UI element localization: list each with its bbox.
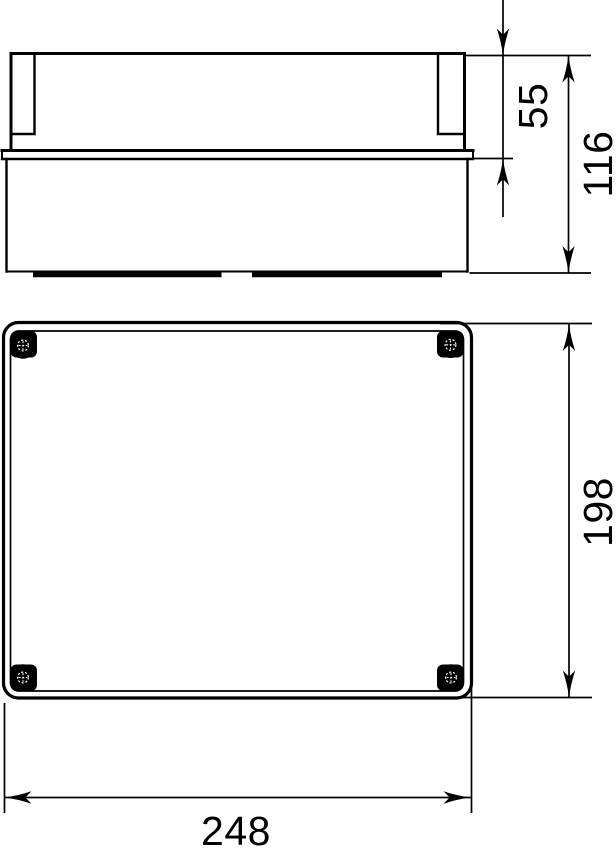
body-walls: [7, 159, 468, 272]
lid-clip-right: [438, 54, 465, 134]
drawing-page: 55 116: [0, 0, 616, 850]
corner-screw-bottom-left-icon: [10, 664, 37, 691]
corner-screw-bottom-right-icon: [437, 664, 464, 691]
corner-screw-top-left-icon: [10, 331, 37, 359]
lid-outline: [11, 54, 465, 151]
lid-clip-left: [11, 54, 35, 134]
technical-drawing-canvas: 55 116: [0, 0, 616, 850]
dim-total-height-label: 116: [575, 131, 616, 198]
plan-view-dimensions: 198 248: [5, 324, 616, 850]
side-view: 55 116: [2, 0, 616, 274]
plan-inner-outline: [11, 331, 464, 691]
plan-outer-outline: [4, 323, 472, 699]
plan-view: 198 248: [4, 323, 616, 850]
side-view-dimensions: 55 116: [466, 0, 616, 273]
dim-length-label: 198: [575, 477, 616, 547]
corner-screw-top-right-icon: [437, 331, 464, 358]
dim-width-label: 248: [201, 808, 271, 850]
dim-lid-height-label: 55: [510, 83, 556, 130]
